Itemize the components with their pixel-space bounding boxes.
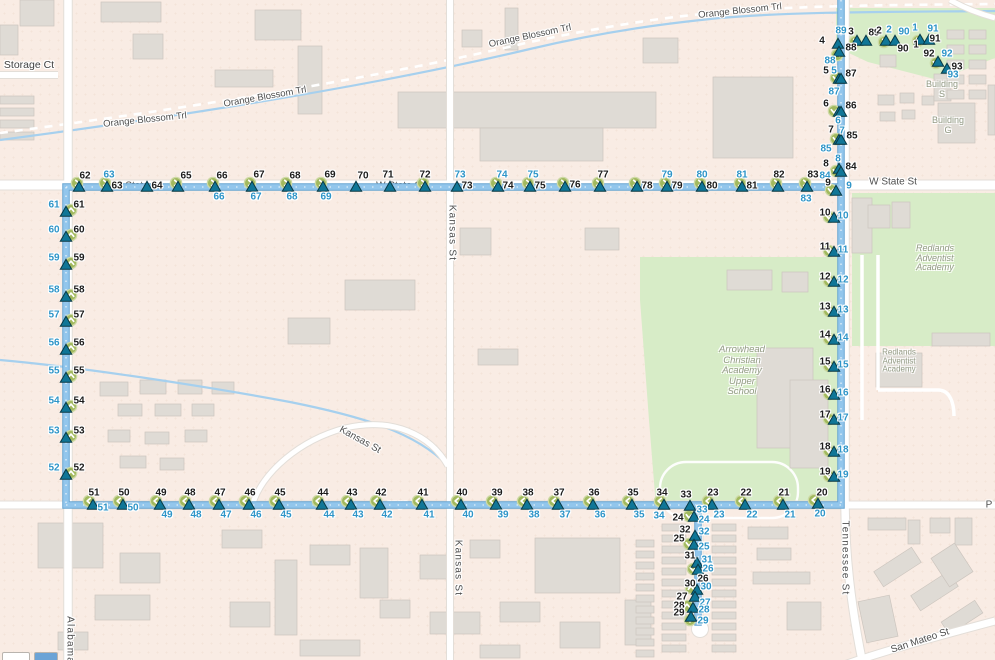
stop-label-blue-19: 19 (837, 470, 848, 481)
place-label: Building G (932, 115, 964, 135)
stop-label-black-83: 83 (807, 170, 818, 181)
stop-label-blue-48: 48 (190, 510, 201, 521)
stop-label-black-71: 71 (382, 170, 393, 181)
stop-label-blue-14: 14 (837, 333, 848, 344)
stop-label-blue-46: 46 (250, 510, 261, 521)
stop-label-black-82: 82 (773, 170, 784, 181)
stop-label-blue-1: 1 (912, 23, 918, 34)
stop-label-blue-60: 60 (48, 225, 59, 236)
stop-label-black-77: 77 (597, 170, 608, 181)
stop-label-blue-91: 91 (927, 24, 938, 35)
route-centerline (66, 0, 841, 622)
stop-label-blue-83: 83 (800, 194, 811, 205)
stop-label-black-70: 70 (357, 171, 368, 182)
stop-label-black-19: 19 (819, 467, 830, 478)
stop-label-black-8: 8 (823, 159, 829, 170)
stop-label-blue-85: 85 (820, 144, 831, 155)
place-label: ArrowheadChristianAcademy UpperSchool (719, 345, 765, 398)
stop-label-black-52: 52 (73, 463, 84, 474)
stop-label-black-43: 43 (346, 488, 357, 499)
stop-label-black-6: 6 (823, 99, 829, 110)
stop-label-black-74: 74 (502, 181, 513, 192)
street-label: Storage Ct (4, 59, 54, 71)
stop-label-blue-37: 37 (559, 510, 570, 521)
stop-label-black-46: 46 (244, 488, 255, 499)
stop-label-blue-23: 23 (713, 510, 724, 521)
stop-label-blue-90: 90 (898, 27, 909, 38)
stop-label-blue-26: 26 (702, 564, 713, 575)
stop-label-blue-40: 40 (462, 510, 473, 521)
stop-label-blue-89: 89 (835, 26, 846, 37)
street-label: W State St (869, 177, 917, 188)
stop-label-black-1: 1 (913, 40, 919, 51)
stop-label-black-5: 5 (823, 66, 829, 77)
map-canvas[interactable]: W State StW State Stange Av Storage CtOr… (0, 0, 995, 660)
stop-label-black-47: 47 (214, 488, 225, 499)
stop-label-blue-74: 74 (496, 170, 507, 181)
stop-label-blue-13: 13 (837, 305, 848, 316)
stop-label-black-2: 2 (876, 26, 882, 37)
stop-label-blue-25: 25 (698, 542, 709, 553)
stop-label-blue-55: 55 (48, 366, 59, 377)
stop-label-black-50: 50 (118, 488, 129, 499)
stop-label-blue-81: 81 (736, 170, 747, 181)
street-label: Kansas St (447, 205, 458, 261)
stop-label-blue-30: 30 (700, 582, 711, 593)
stop-label-blue-66: 66 (213, 192, 224, 203)
stop-label-blue-54: 54 (48, 396, 59, 407)
stop-label-black-3: 3 (848, 27, 854, 38)
street-label: Alabama St (65, 616, 76, 660)
stop-label-black-56: 56 (73, 338, 84, 349)
stop-label-black-31: 31 (684, 551, 695, 562)
stop-label-black-17: 17 (819, 410, 830, 421)
stop-label-blue-15: 15 (837, 360, 848, 371)
stop-label-black-38: 38 (522, 488, 533, 499)
stop-label-black-73: 73 (461, 181, 472, 192)
stop-label-black-12: 12 (819, 272, 830, 283)
street-label: Kansas St (453, 540, 464, 596)
route-line-casing (66, 0, 841, 622)
stop-label-black-25: 25 (673, 534, 684, 545)
stop-label-black-42: 42 (375, 488, 386, 499)
stop-label-black-35: 35 (627, 488, 638, 499)
stop-label-black-80: 80 (706, 181, 717, 192)
stop-label-blue-41: 41 (423, 510, 434, 521)
stop-label-black-22: 22 (740, 488, 751, 499)
stop-label-blue-47: 47 (220, 510, 231, 521)
stop-label-black-4: 4 (819, 36, 825, 47)
stop-label-blue-32: 32 (698, 527, 709, 538)
stop-label-blue-10: 10 (837, 211, 848, 222)
stop-label-blue-56: 56 (48, 338, 59, 349)
stop-label-blue-16: 16 (837, 388, 848, 399)
stop-label-blue-45: 45 (280, 510, 291, 521)
stop-label-black-58: 58 (73, 285, 84, 296)
stop-label-black-81: 81 (746, 181, 757, 192)
stop-label-black-63: 63 (111, 181, 122, 192)
stop-label-blue-59: 59 (48, 253, 59, 264)
stop-label-black-79: 79 (671, 181, 682, 192)
map-control-fragment-1[interactable] (34, 652, 58, 660)
stop-label-black-44: 44 (317, 488, 328, 499)
stop-label-blue-5: 5 (831, 66, 837, 77)
stop-label-black-10: 10 (819, 208, 830, 219)
stop-label-black-9: 9 (825, 178, 831, 189)
stop-label-blue-57: 57 (48, 310, 59, 321)
stop-label-black-91: 91 (929, 34, 940, 45)
stop-label-black-62: 62 (79, 171, 90, 182)
stop-label-blue-36: 36 (594, 510, 605, 521)
stop-label-blue-50: 50 (127, 503, 138, 514)
stop-label-black-29: 29 (673, 608, 684, 619)
stop-label-black-86: 86 (845, 101, 856, 112)
stop-label-black-39: 39 (491, 488, 502, 499)
stop-label-black-16: 16 (819, 385, 830, 396)
stop-label-black-33: 33 (680, 490, 691, 501)
stop-label-blue-44: 44 (323, 510, 334, 521)
stop-label-black-36: 36 (588, 488, 599, 499)
stop-label-black-78: 78 (641, 181, 652, 192)
street-label: P (986, 500, 993, 511)
stop-label-black-18: 18 (819, 442, 830, 453)
stop-label-blue-58: 58 (48, 285, 59, 296)
stop-label-blue-73: 73 (454, 170, 465, 181)
stop-label-blue-28: 28 (698, 605, 709, 616)
stop-label-black-41: 41 (417, 488, 428, 499)
stop-label-black-88: 88 (845, 43, 856, 54)
stop-label-black-30: 30 (684, 579, 695, 590)
stop-label-black-55: 55 (73, 366, 84, 377)
place-label: RedlandsAdventistAcademy (916, 244, 954, 273)
stop-label-blue-18: 18 (837, 445, 848, 456)
stop-label-blue-9: 9 (846, 181, 852, 192)
stop-label-blue-21: 21 (784, 510, 795, 521)
stop-label-blue-2: 2 (886, 25, 892, 36)
stop-label-blue-38: 38 (528, 510, 539, 521)
stop-label-black-75: 75 (534, 181, 545, 192)
stop-label-black-59: 59 (73, 253, 84, 264)
stop-label-blue-42: 42 (381, 510, 392, 521)
stop-label-blue-11: 11 (838, 245, 849, 256)
stop-label-black-87: 87 (845, 69, 856, 80)
stop-label-blue-34: 34 (653, 511, 664, 522)
stop-label-blue-61: 61 (48, 200, 59, 211)
stop-label-black-13: 13 (819, 302, 830, 313)
stop-label-black-76: 76 (569, 180, 580, 191)
stop-label-black-37: 37 (553, 488, 564, 499)
stop-label-blue-20: 20 (814, 509, 825, 520)
stop-label-black-21: 21 (778, 488, 789, 499)
stop-label-black-90: 90 (897, 44, 908, 55)
stop-label-blue-35: 35 (633, 510, 644, 521)
stop-label-blue-12: 12 (837, 275, 848, 286)
stop-label-black-65: 65 (180, 171, 191, 182)
map-control-fragment-0[interactable] (2, 652, 30, 660)
stop-label-black-24: 24 (672, 513, 683, 524)
stop-label-black-61: 61 (73, 200, 84, 211)
stop-label-black-57: 57 (73, 310, 84, 321)
stop-label-blue-52: 52 (48, 463, 59, 474)
stop-label-black-49: 49 (155, 488, 166, 499)
stop-label-black-64: 64 (151, 181, 162, 192)
stop-label-blue-75: 75 (527, 170, 538, 181)
stop-label-black-34: 34 (656, 488, 667, 499)
stop-label-black-92: 92 (923, 49, 934, 60)
stop-label-blue-53: 53 (48, 426, 59, 437)
stop-label-blue-87: 87 (828, 87, 839, 98)
stop-label-black-53: 53 (73, 426, 84, 437)
stop-label-black-67: 67 (253, 170, 264, 181)
stop-label-black-85: 85 (846, 131, 857, 142)
stop-label-blue-51: 51 (97, 503, 108, 514)
stop-label-black-68: 68 (289, 171, 300, 182)
stop-label-blue-80: 80 (696, 170, 707, 181)
place-label: Building S (926, 79, 958, 99)
stop-label-blue-49: 49 (161, 510, 172, 521)
stop-label-blue-24: 24 (698, 515, 709, 526)
stop-label-black-20: 20 (816, 488, 827, 499)
stop-label-blue-7: 7 (839, 126, 845, 137)
stop-label-blue-43: 43 (352, 510, 363, 521)
stop-label-blue-17: 17 (837, 413, 848, 424)
stop-label-black-72: 72 (419, 170, 430, 181)
stop-label-black-69: 69 (324, 170, 335, 181)
stop-label-black-48: 48 (184, 488, 195, 499)
stop-label-blue-29: 29 (697, 616, 708, 627)
stop-label-blue-79: 79 (661, 170, 672, 181)
stop-label-blue-92: 92 (941, 49, 952, 60)
street-label: Tennessee St (840, 521, 851, 596)
stop-label-blue-68: 68 (286, 192, 297, 203)
stop-label-black-66: 66 (216, 171, 227, 182)
stop-label-black-60: 60 (73, 225, 84, 236)
stop-label-black-51: 51 (88, 488, 99, 499)
stop-label-blue-69: 69 (320, 192, 331, 203)
stop-label-blue-93: 93 (947, 70, 958, 81)
stop-label-black-7: 7 (828, 125, 834, 136)
stop-label-blue-22: 22 (746, 510, 757, 521)
route-line[interactable] (66, 0, 841, 622)
stop-label-black-54: 54 (73, 396, 84, 407)
stop-label-blue-67: 67 (250, 192, 261, 203)
stop-label-black-11: 11 (820, 242, 831, 253)
stop-label-blue-39: 39 (497, 510, 508, 521)
stop-label-black-84: 84 (845, 162, 856, 173)
stop-label-black-23: 23 (707, 488, 718, 499)
stop-label-blue-8: 8 (835, 154, 841, 165)
stop-label-black-45: 45 (274, 488, 285, 499)
stop-label-blue-63: 63 (103, 170, 114, 181)
place-label: RedlandsAdventistAcademy (882, 348, 916, 374)
stop-label-black-15: 15 (819, 357, 830, 368)
stop-label-black-14: 14 (819, 330, 830, 341)
stop-label-black-40: 40 (456, 488, 467, 499)
